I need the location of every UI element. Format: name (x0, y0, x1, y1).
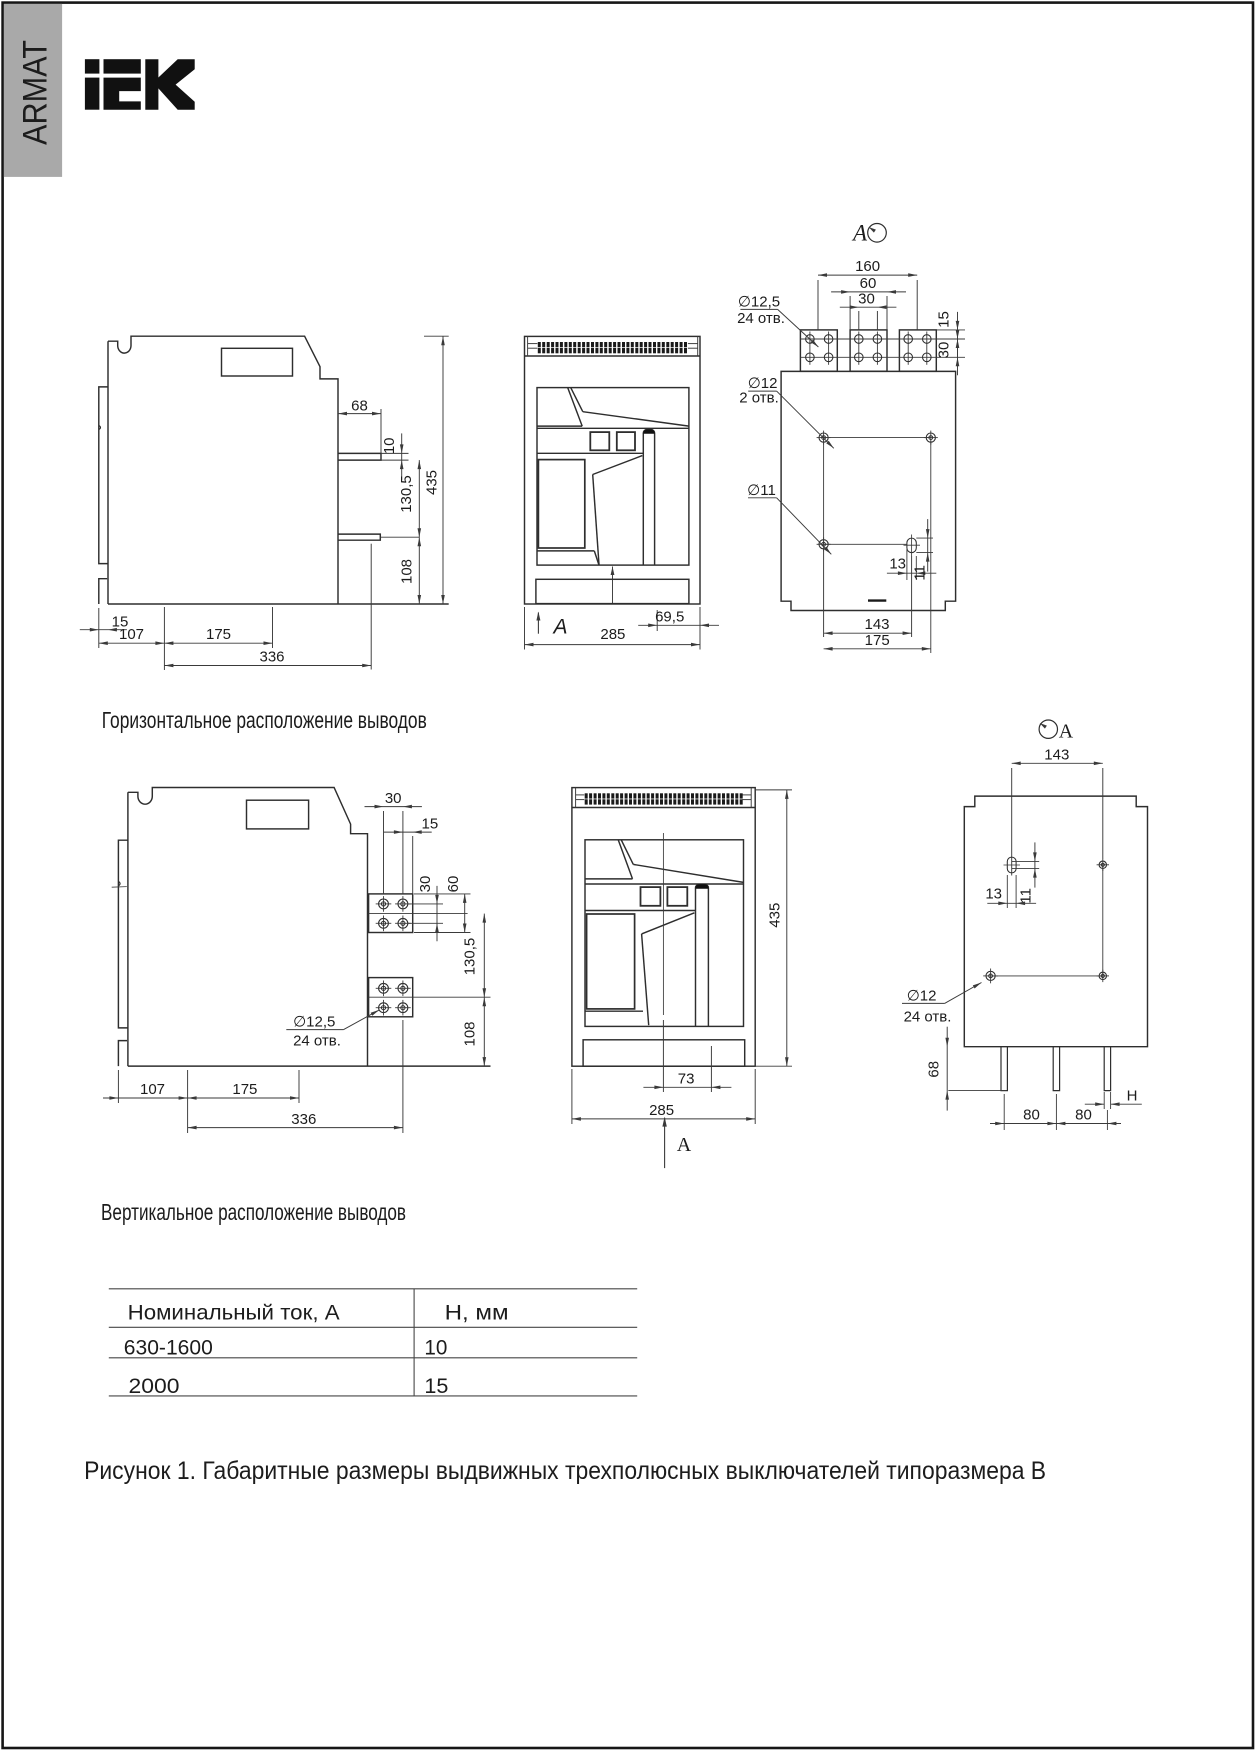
svg-text:175: 175 (232, 1081, 257, 1098)
svg-text:A: A (1059, 721, 1074, 743)
svg-text:80: 80 (1075, 1107, 1092, 1124)
svg-text:15: 15 (422, 816, 439, 833)
svg-text:∅12,5: ∅12,5 (738, 293, 780, 310)
svg-text:30: 30 (417, 876, 434, 893)
svg-text:175: 175 (865, 632, 890, 649)
svg-text:Вертикальное расположение выво: Вертикальное расположение выводов (101, 1199, 406, 1225)
svg-text:24 отв.: 24 отв. (904, 1009, 952, 1026)
svg-text:11: 11 (1018, 888, 1035, 904)
svg-text:108: 108 (461, 1021, 478, 1046)
svg-text:160: 160 (855, 258, 880, 275)
svg-text:13: 13 (985, 886, 1002, 903)
svg-text:175: 175 (206, 626, 231, 643)
svg-text:11: 11 (912, 565, 929, 581)
svg-text:10: 10 (424, 1336, 447, 1360)
svg-text:630-1600: 630-1600 (124, 1336, 213, 1360)
svg-text:Н, мм: Н, мм (445, 1300, 509, 1324)
svg-text:285: 285 (649, 1102, 674, 1119)
svg-text:30: 30 (858, 291, 875, 308)
svg-text:60: 60 (860, 275, 877, 292)
svg-text:15: 15 (936, 311, 953, 328)
svg-text:2 отв.: 2 отв. (739, 389, 779, 406)
svg-text:107: 107 (140, 1081, 165, 1098)
svg-text:∅12,5: ∅12,5 (293, 1013, 335, 1030)
svg-text:107: 107 (119, 626, 144, 643)
svg-text:Номинальный ток, А: Номинальный ток, А (128, 1300, 341, 1324)
svg-text:A: A (677, 1134, 692, 1156)
svg-text:24 отв.: 24 отв. (293, 1032, 341, 1049)
svg-text:336: 336 (259, 649, 284, 666)
svg-text:108: 108 (399, 559, 416, 584)
svg-text:10: 10 (381, 437, 398, 454)
svg-text:A: A (851, 221, 868, 246)
svg-text:ARMAT: ARMAT (16, 40, 54, 145)
svg-text:143: 143 (1044, 746, 1069, 763)
svg-text:24 отв.: 24 отв. (737, 310, 785, 327)
svg-text:68: 68 (351, 398, 368, 415)
svg-text:A: A (551, 616, 567, 639)
svg-text:80: 80 (1023, 1107, 1040, 1124)
svg-text:Горизонтальное расположение вы: Горизонтальное расположение выводов (102, 707, 427, 733)
svg-text:30: 30 (936, 342, 953, 359)
svg-text:2000: 2000 (129, 1374, 180, 1398)
svg-text:60: 60 (445, 876, 462, 893)
svg-text:73: 73 (678, 1070, 695, 1087)
svg-text:143: 143 (864, 616, 889, 633)
svg-text:30: 30 (385, 790, 402, 807)
svg-text:336: 336 (291, 1111, 316, 1128)
svg-text:130,5: 130,5 (398, 475, 415, 513)
svg-text:69,5: 69,5 (655, 608, 684, 625)
svg-text:285: 285 (600, 626, 625, 643)
svg-text:∅12: ∅12 (907, 988, 937, 1005)
svg-text:13: 13 (889, 556, 906, 573)
svg-text:435: 435 (424, 470, 441, 495)
svg-text:68: 68 (925, 1061, 942, 1078)
svg-text:15: 15 (424, 1374, 448, 1398)
svg-text:∅11: ∅11 (747, 482, 776, 499)
svg-text:130,5: 130,5 (462, 938, 479, 976)
svg-text:H: H (1127, 1087, 1138, 1104)
svg-text:Рисунок 1. Габаритные размеры: Рисунок 1. Габаритные размеры выдвижных … (84, 1457, 1046, 1485)
svg-text:435: 435 (766, 903, 783, 928)
